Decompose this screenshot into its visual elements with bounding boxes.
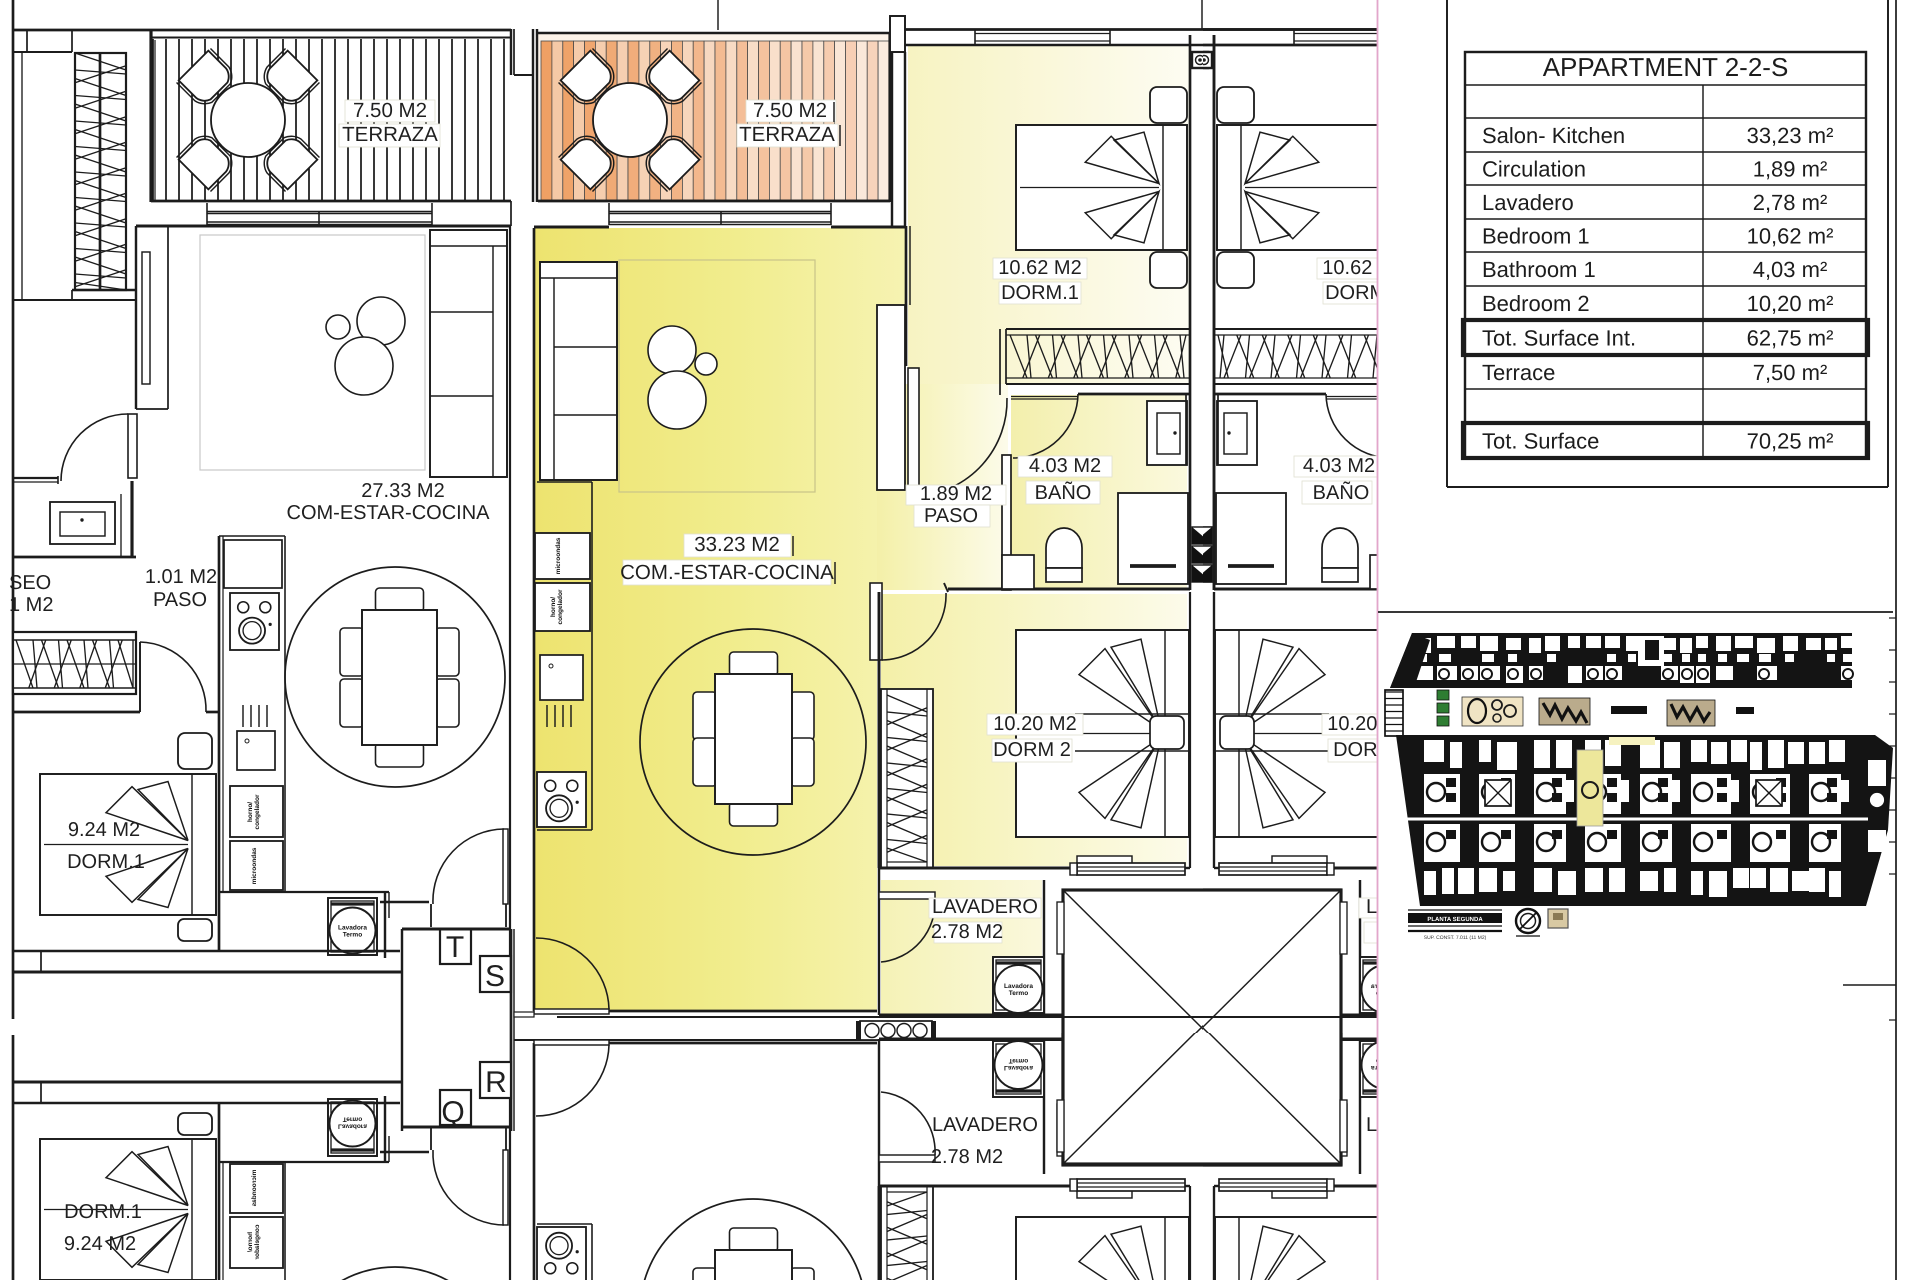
svg-text:10,20 m²: 10,20 m² [1747,291,1834,316]
svg-text:SUP. CONST. 7.011 (11 M2): SUP. CONST. 7.011 (11 M2) [1424,935,1487,941]
svg-text:9.24 M2: 9.24 M2 [68,819,140,841]
svg-text:PASO: PASO [924,505,978,527]
svg-text:PLANTA SEGUNDA: PLANTA SEGUNDA [1427,916,1483,923]
svg-text:2.78 M2: 2.78 M2 [931,1146,1003,1168]
svg-text:DORM.1: DORM.1 [64,1201,142,1223]
svg-text:COM.-ESTAR-COCINA: COM.-ESTAR-COCINA [620,561,834,584]
svg-text:horno/: horno/ [247,802,254,822]
svg-text:27.33 M2: 27.33 M2 [361,480,444,502]
svg-text:Lavadora: Lavadora [1004,983,1033,990]
svg-text:BAÑO: BAÑO [1035,481,1092,504]
svg-text:S: S [485,960,505,993]
svg-text:Lavadero: Lavadero [1482,190,1574,215]
svg-text:2.78 M2: 2.78 M2 [931,921,1003,943]
svg-text:10,62 m²: 10,62 m² [1747,224,1834,249]
svg-text:7.50 M2: 7.50 M2 [753,99,827,122]
svg-text:1 M2: 1 M2 [9,594,53,616]
svg-text:33,23 m²: 33,23 m² [1747,123,1834,148]
svg-text:Lavadora: Lavadora [338,925,367,932]
svg-text:congelador: congelador [557,589,564,625]
svg-text:microondas: microondas [251,847,258,884]
svg-text:62,75 m²: 62,75 m² [1747,326,1834,351]
svg-text:TERRAZA: TERRAZA [342,123,438,146]
svg-text:Termo: Termo [343,932,362,939]
svg-text:DORM 2: DORM 2 [993,739,1071,761]
svg-text:Terrace: Terrace [1482,360,1555,385]
svg-text:COM-ESTAR-COCINA: COM-ESTAR-COCINA [287,502,491,524]
svg-text:10.20 M2: 10.20 M2 [993,713,1076,735]
svg-text:Circulation: Circulation [1482,157,1586,182]
svg-text:70,25 m²: 70,25 m² [1747,429,1834,454]
svg-text:Tot. Surface Int.: Tot. Surface Int. [1482,326,1636,351]
svg-text:APPARTMENT 2-2-S: APPARTMENT 2-2-S [1543,52,1789,82]
svg-text:BAÑO: BAÑO [1313,481,1370,504]
svg-text:4.03 M2: 4.03 M2 [1303,455,1375,477]
svg-text:congelador: congelador [254,794,261,830]
svg-text:4,03 m²: 4,03 m² [1753,257,1828,282]
svg-text:9.24 M2: 9.24 M2 [64,1233,136,1255]
svg-text:2,78 m²: 2,78 m² [1753,190,1828,215]
svg-text:10.62 M2: 10.62 M2 [998,257,1081,279]
svg-text:SEO: SEO [9,572,51,594]
svg-text:Salon- Kitchen: Salon- Kitchen [1482,123,1625,148]
svg-text:1,89 m²: 1,89 m² [1753,157,1828,182]
svg-text:TERRAZA: TERRAZA [739,123,835,146]
svg-text:4.03 M2: 4.03 M2 [1029,455,1101,477]
svg-text:Q: Q [441,1096,464,1129]
svg-text:Termo: Termo [1009,990,1028,997]
svg-text:7.50 M2: 7.50 M2 [353,99,427,122]
svg-text:LAVADERO: LAVADERO [932,1114,1038,1136]
svg-text:Bathroom 1: Bathroom 1 [1482,257,1596,282]
svg-text:T: T [446,931,464,964]
svg-text:1.89 M2: 1.89 M2 [920,483,992,505]
svg-text:R: R [485,1066,507,1099]
svg-text:horno/: horno/ [550,597,557,617]
svg-text:Bedroom 2: Bedroom 2 [1482,291,1590,316]
svg-text:1.01 M2: 1.01 M2 [145,566,217,588]
svg-text:DORM.1: DORM.1 [1001,282,1079,304]
svg-text:Bedroom 1: Bedroom 1 [1482,224,1590,249]
svg-text:PASO: PASO [153,589,207,611]
svg-text:Tot. Surface: Tot. Surface [1482,429,1599,454]
svg-text:LAVADERO: LAVADERO [932,896,1038,918]
svg-text:7,50 m²: 7,50 m² [1753,360,1828,385]
svg-text:microondas: microondas [555,537,562,574]
svg-text:33.23 M2: 33.23 M2 [694,533,779,556]
svg-text:DORM.1: DORM.1 [67,851,145,873]
